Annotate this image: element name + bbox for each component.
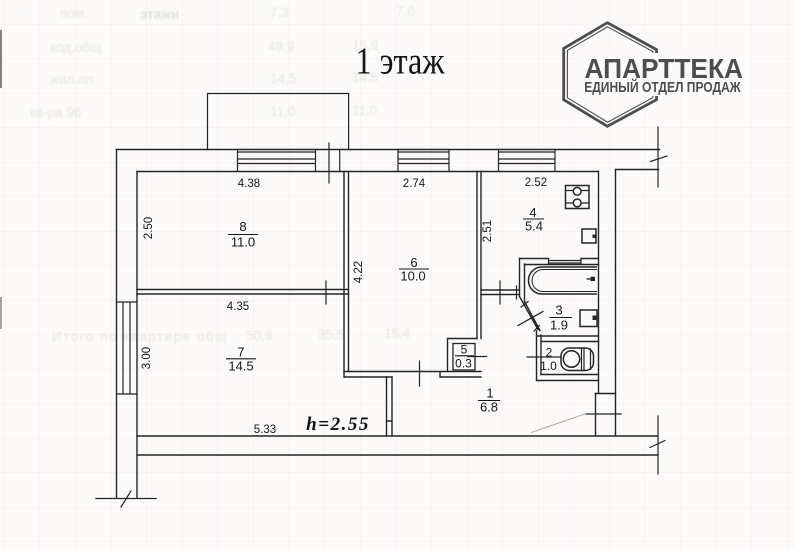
svg-text:4.38: 4.38 — [238, 178, 260, 190]
svg-text:50,9: 50,9 — [246, 328, 272, 343]
svg-text:2.52: 2.52 — [525, 177, 547, 189]
svg-text:код,общ: код,общ — [50, 40, 101, 55]
svg-text:35,5: 35,5 — [318, 327, 344, 342]
svg-text:4.35: 4.35 — [227, 301, 249, 313]
svg-text:11,0: 11,0 — [352, 103, 377, 118]
svg-text:h=2.55: h=2.55 — [306, 414, 370, 435]
svg-text:3: 3 — [555, 303, 562, 318]
svg-text:10.0: 10.0 — [400, 269, 425, 284]
svg-text:кв-ра 96: кв-ра 96 — [30, 105, 81, 120]
svg-text:14,5: 14,5 — [270, 71, 296, 86]
svg-text:2: 2 — [546, 346, 553, 360]
svg-text:14.5: 14.5 — [228, 359, 253, 374]
svg-text:3.00: 3.00 — [141, 347, 153, 369]
svg-text:жил.пл: жил.пл — [50, 72, 93, 87]
svg-text:11,0: 11,0 — [270, 104, 295, 119]
svg-text:8: 8 — [239, 219, 246, 234]
svg-text:2.51: 2.51 — [482, 220, 494, 242]
svg-text:этажи: этажи — [140, 7, 179, 22]
svg-text:7,0: 7,0 — [396, 4, 415, 19]
svg-text:1: 1 — [486, 386, 493, 401]
svg-text:Итого по квартире общ: Итого по квартире общ — [52, 329, 228, 344]
svg-text:ЕДИНЫЙ ОТДЕЛ ПРОДАЖ: ЕДИНЫЙ ОТДЕЛ ПРОДАЖ — [584, 78, 741, 96]
svg-text:1.0: 1.0 — [540, 359, 557, 373]
svg-text:1.9: 1.9 — [550, 318, 568, 333]
svg-text:5.33: 5.33 — [254, 424, 276, 436]
svg-text:11.0: 11.0 — [231, 235, 255, 250]
svg-text:7: 7 — [237, 345, 244, 360]
svg-text:пом.: пом. — [60, 6, 88, 21]
svg-text:2.50: 2.50 — [143, 217, 155, 239]
svg-text:7,3: 7,3 — [270, 5, 289, 20]
svg-text:4.22: 4.22 — [353, 261, 365, 283]
svg-text:15,4: 15,4 — [384, 326, 411, 341]
svg-text:5: 5 — [461, 343, 468, 357]
svg-text:2.74: 2.74 — [403, 178, 426, 190]
svg-text:1 этаж: 1 этаж — [356, 41, 446, 83]
svg-text:49,9: 49,9 — [268, 39, 294, 54]
svg-text:’: ’ — [28, 7, 31, 21]
svg-text:6.8: 6.8 — [480, 400, 498, 415]
svg-text:5.4: 5.4 — [525, 219, 543, 234]
svg-text:0.3: 0.3 — [455, 357, 472, 371]
